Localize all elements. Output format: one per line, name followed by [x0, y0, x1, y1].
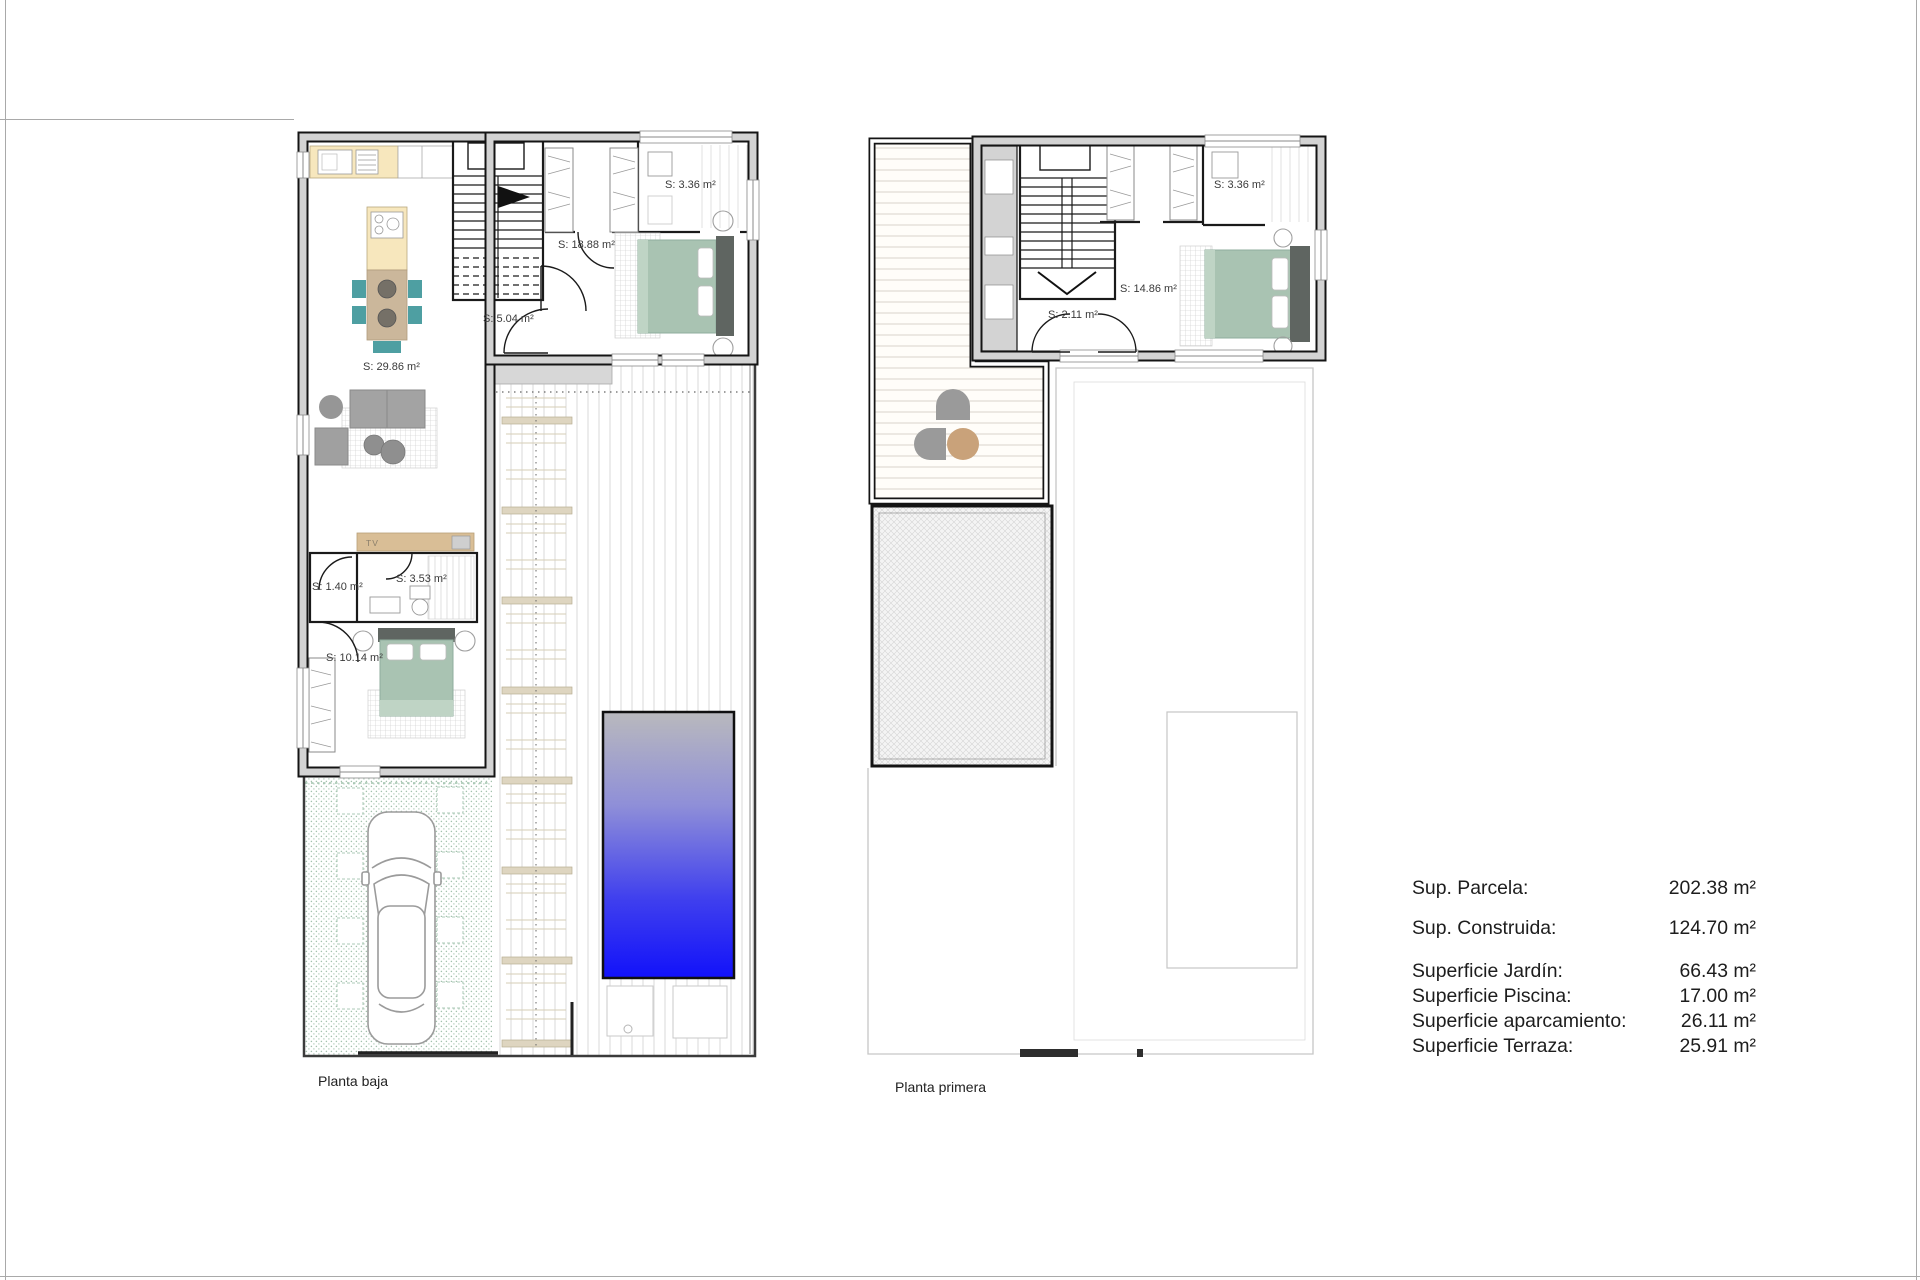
pillow-icon [698, 286, 713, 316]
room-area-label: S: 14.86 m² [1120, 283, 1177, 295]
chair-icon [408, 280, 422, 298]
plan-caption: Planta baja [318, 1073, 388, 1089]
window [985, 160, 1013, 319]
car-icon [362, 812, 441, 1044]
pouf-icon [381, 440, 405, 464]
skylight-hatch-panel [872, 506, 1052, 766]
summary-value: 66.43 m² [1679, 959, 1756, 983]
room-area-label: S: 1.40 m² [312, 581, 363, 593]
summary-label: Superficie Terraza: [1412, 1034, 1573, 1058]
bed-icon [1205, 246, 1310, 342]
tv-label: TV [366, 538, 379, 548]
bed-icon [378, 628, 455, 716]
pillow-icon [387, 644, 413, 660]
wardrobe-icon [1170, 146, 1197, 220]
kitchen-counter [310, 146, 455, 178]
page-border-right [1916, 0, 1917, 1280]
pillow-icon [420, 644, 446, 660]
wall-section-mark [1020, 1049, 1078, 1057]
summary-row: Superficie aparcamiento: 26.11 m² [1412, 1009, 1756, 1033]
wardrobe-icon [309, 658, 335, 752]
stairs-icon [1020, 141, 1115, 299]
room-area-label: S: 29.86 m² [363, 361, 420, 373]
pool-below-outline [1167, 712, 1297, 968]
tv-console: TV [357, 533, 474, 551]
wall-section-mark [1137, 1049, 1143, 1057]
summary-value: 202.38 m² [1669, 876, 1756, 900]
pool-icon [603, 712, 734, 978]
wardrobe-icon [545, 148, 573, 232]
wardrobe-icon [610, 148, 638, 232]
armchair-icon [315, 428, 348, 465]
summary-value: 124.70 m² [1669, 916, 1756, 940]
stairs-icon [453, 140, 543, 300]
kitchen-island-icon [367, 207, 407, 270]
pillow-icon [1272, 296, 1288, 328]
room-area-label: S: 18.88 m² [558, 239, 615, 251]
pillow-icon [1272, 258, 1288, 290]
summary-row: Sup. Parcela: 202.38 m² [1412, 876, 1756, 900]
side-table-icon [319, 395, 343, 419]
summary-row: Superficie Piscina: 17.00 m² [1412, 984, 1756, 1008]
chair-icon [352, 306, 366, 324]
summary-row: Superficie Terraza: 25.91 m² [1412, 1034, 1756, 1058]
living-room [315, 390, 437, 468]
room-area-label: S: 5.04 m² [483, 313, 534, 325]
summary-label: Sup. Construida: [1412, 916, 1556, 940]
summary-label: Superficie aparcamiento: [1412, 1009, 1627, 1033]
room-area-label: S: 3.36 m² [1214, 179, 1265, 191]
garage-area [304, 776, 492, 1055]
room-area-label: S: 2.11 m² [1048, 309, 1098, 321]
room-area-label: S: 3.36 m² [665, 179, 716, 191]
floor-plan-drawing: TV [0, 0, 1920, 1280]
bed-icon [638, 236, 734, 336]
plate-icon [378, 280, 396, 298]
sink-icon [318, 150, 352, 174]
chair-icon [373, 341, 401, 353]
page-border-left [5, 0, 6, 1280]
plate-icon [378, 309, 396, 327]
summary-label: Superficie Jardín: [1412, 959, 1563, 983]
chair-icon [408, 306, 422, 324]
outdoor-table-icon [947, 428, 979, 460]
summary-row: Superficie Jardín: 66.43 m² [1412, 959, 1756, 983]
wardrobe-icon [1107, 146, 1134, 220]
plan-caption: Planta primera [895, 1079, 986, 1095]
room-area-label: S: 3.53 m² [396, 573, 447, 585]
summary-label: Superficie Piscina: [1412, 984, 1572, 1008]
summary-row: Sup. Construida: 124.70 m² [1412, 916, 1756, 940]
room-area-label: S: 10.14 m² [326, 652, 383, 664]
summary-value: 25.91 m² [1679, 1034, 1756, 1058]
summary-label: Sup. Parcela: [1412, 876, 1528, 900]
oven-icon [356, 150, 378, 174]
summary-value: 26.11 m² [1681, 1009, 1756, 1033]
outdoor-chair-icon [914, 428, 946, 460]
pillow-icon [698, 248, 713, 278]
planta-primera-plan: S: 3.36 m² S: 2.11 m² S: 14.86 m² Planta… [868, 135, 1327, 1095]
page-border-bottom [0, 1276, 1920, 1277]
shower-icon [428, 556, 474, 619]
planta-baja-plan: TV [297, 131, 759, 1089]
chair-icon [352, 280, 366, 298]
sink-icon [370, 597, 400, 613]
page-border-top-left [0, 119, 294, 120]
toilet-icon [410, 586, 430, 599]
summary-value: 17.00 m² [1679, 984, 1756, 1008]
